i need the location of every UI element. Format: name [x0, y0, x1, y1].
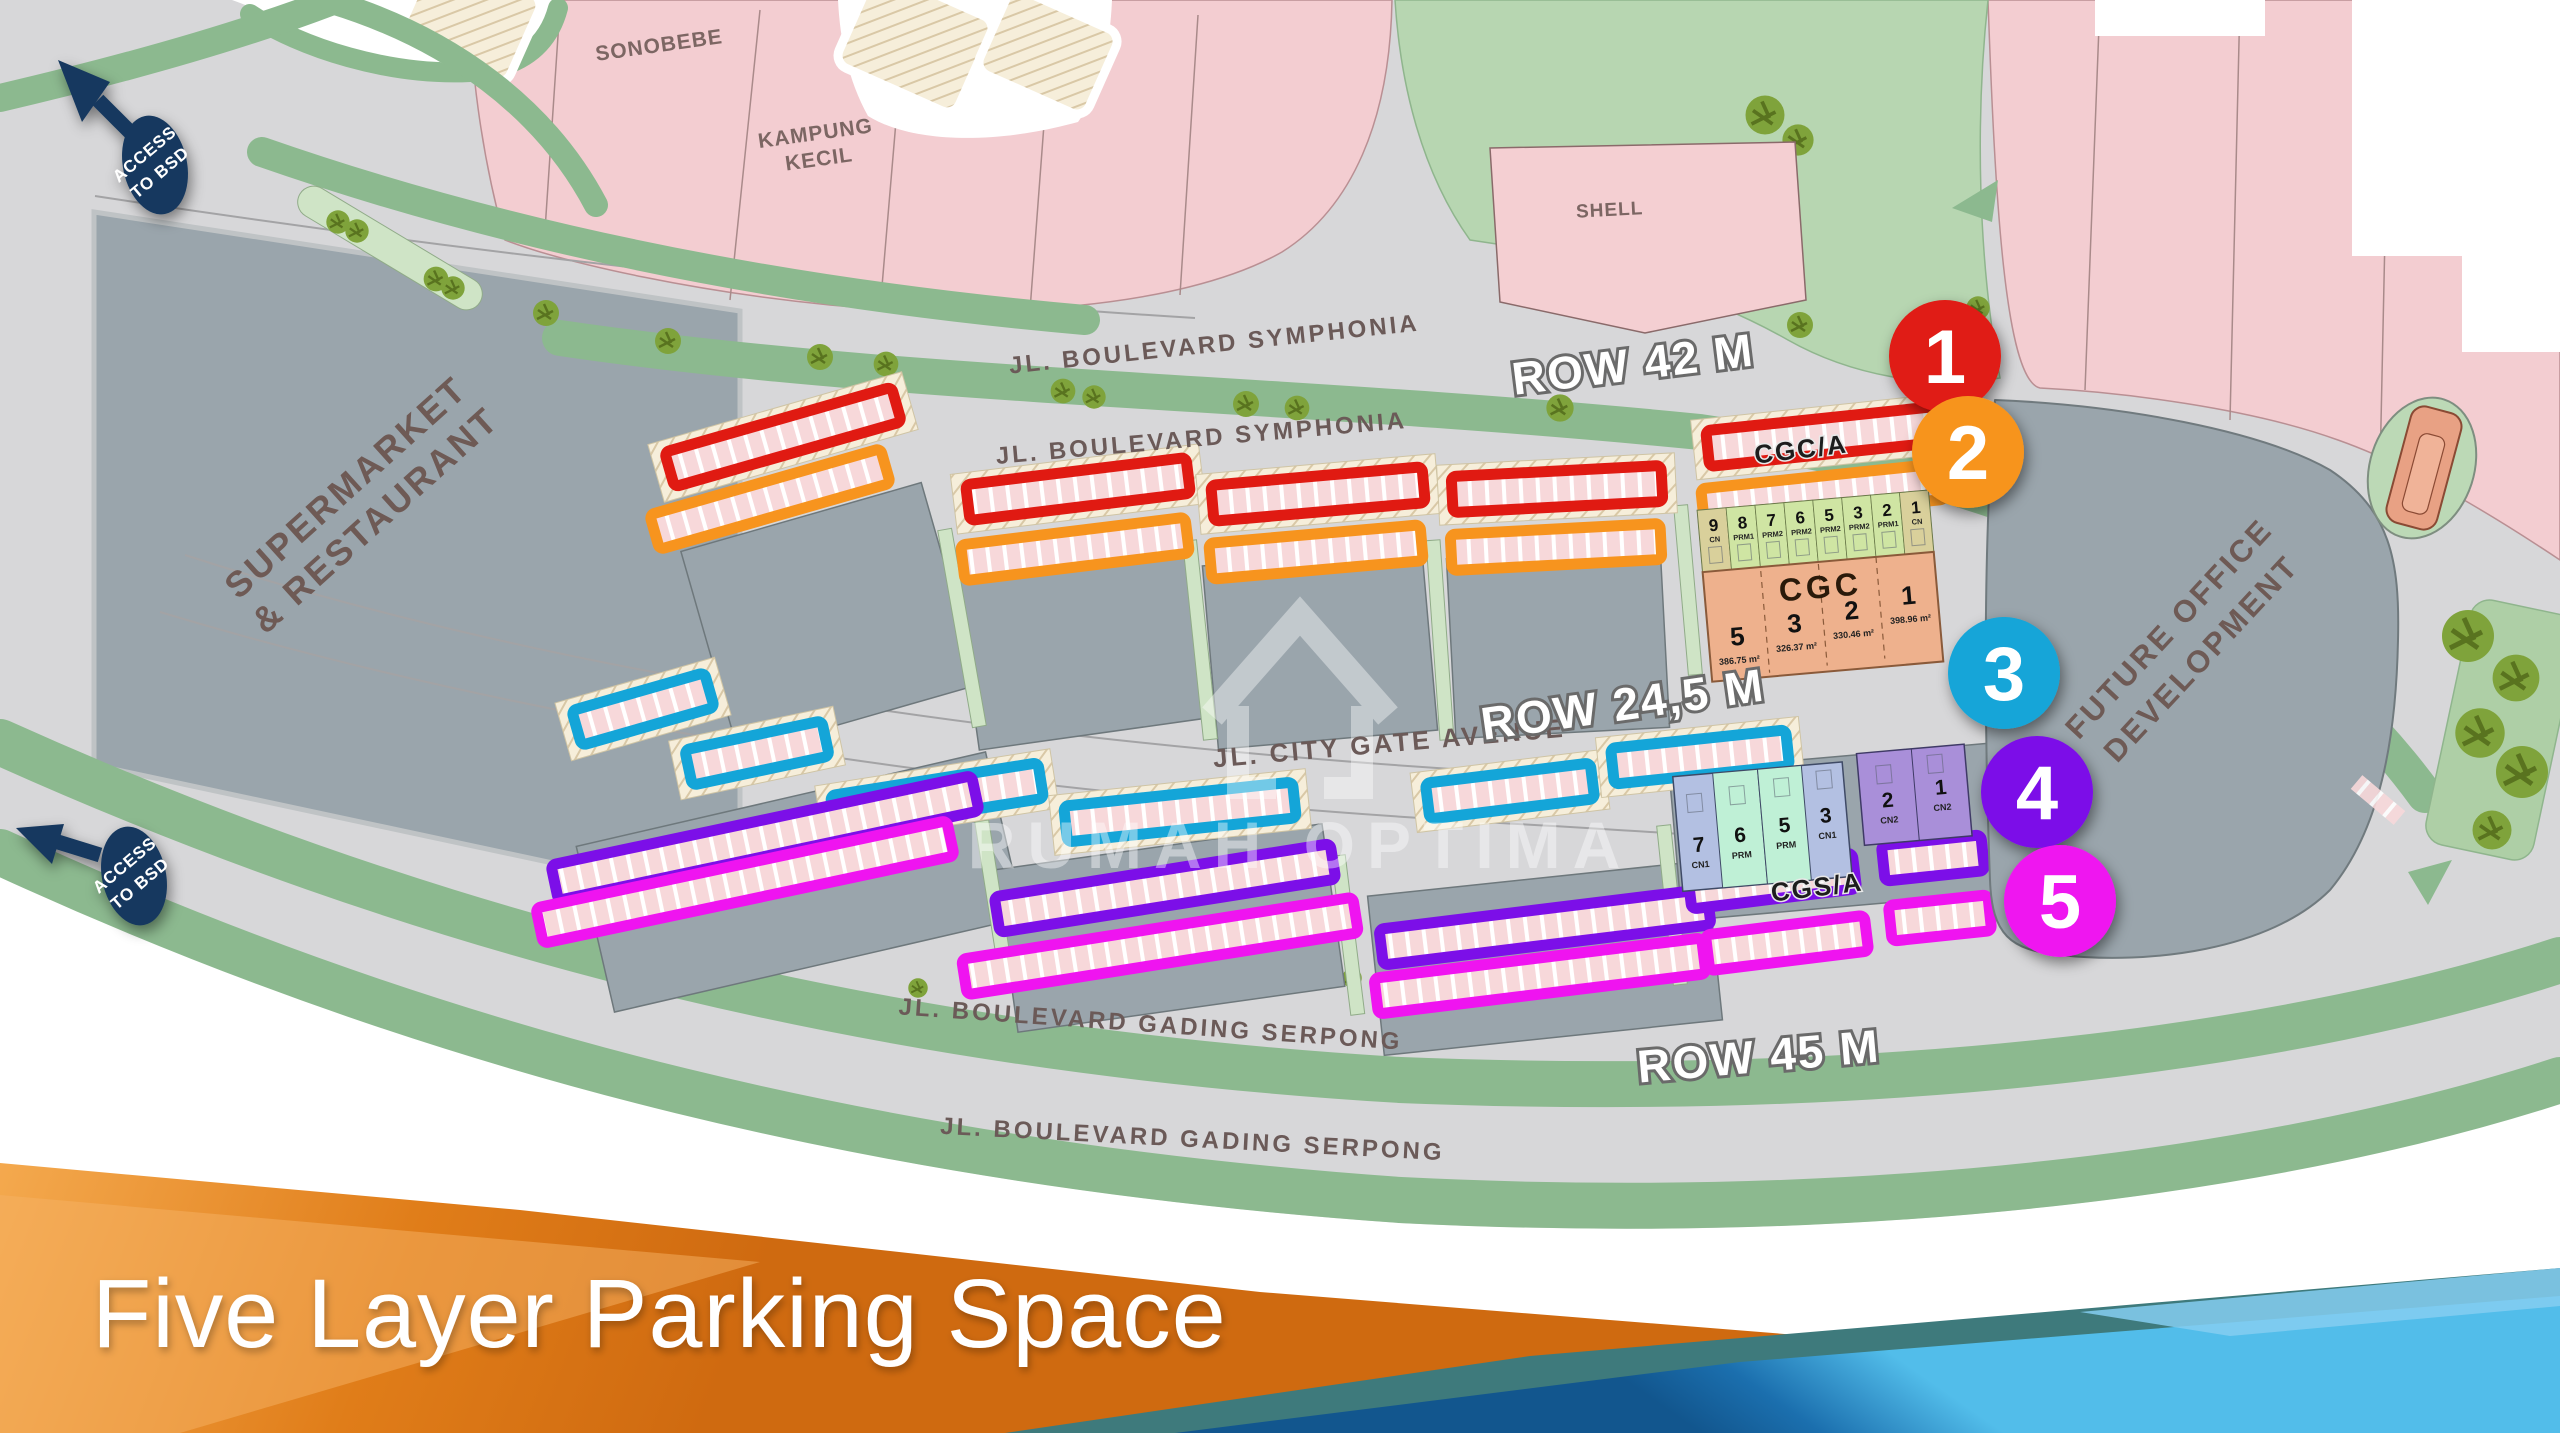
layer-marker-number: 4 — [2016, 751, 2058, 836]
cgs-unit-type: PRM — [1731, 849, 1752, 861]
layer-marker-2: 2 — [1912, 396, 2024, 508]
label-shell: SHELL — [1576, 198, 1644, 222]
cgs-unit-number: 5 — [1778, 814, 1792, 838]
cgc-unit-number: 3 — [1852, 503, 1863, 523]
shell-lot — [1490, 142, 1806, 333]
cgs-unit-type: CN1 — [1818, 830, 1837, 842]
cgc-lower-number: 3 — [1786, 608, 1803, 639]
layer-marker-number: 2 — [1947, 411, 1989, 496]
cgc-unit-number: 1 — [1910, 498, 1921, 518]
layer-marker-number: 1 — [1924, 315, 1966, 400]
cgc-unit-type: CN — [1911, 517, 1923, 527]
cgc-unit-number: 9 — [1708, 516, 1719, 536]
cgc-unit-type: PRM1 — [1733, 531, 1755, 542]
cgc-unit-type: PRM2 — [1820, 524, 1842, 535]
site-plan-map: 9 8 7 6 5 3 2 1 CN PRM1 PRM2 PRM2 PRM2 P… — [0, 0, 2560, 1229]
layer-marker-4: 4 — [1981, 736, 2093, 848]
cgs-unit-number: 1 — [1934, 776, 1948, 800]
cgc-unit-number: 5 — [1824, 505, 1835, 525]
slide-canvas: 9 8 7 6 5 3 2 1 CN PRM1 PRM2 PRM2 PRM2 P… — [0, 0, 2560, 1433]
layer-marker-number: 5 — [2039, 860, 2081, 945]
layer-marker-3: 3 — [1948, 617, 2060, 729]
cgc-unit-type: PRM1 — [1877, 519, 1899, 530]
cgs-unit-type: CN1 — [1691, 859, 1710, 871]
cgs-unit-type: PRM — [1776, 839, 1797, 851]
park-tree-icon — [1746, 96, 1785, 135]
layer-marker-1: 1 — [1889, 300, 2001, 412]
cgc-unit-type: PRM2 — [1848, 521, 1870, 532]
site-plan-svg: 9 8 7 6 5 3 2 1 CN PRM1 PRM2 PRM2 PRM2 P… — [0, 0, 2560, 1433]
cgs-unit-type: CN2 — [1933, 802, 1952, 814]
cgc-unit-number: 8 — [1737, 513, 1748, 533]
cgc-unit-type: CN — [1709, 534, 1721, 544]
layer-marker-5: 5 — [2004, 845, 2116, 957]
cgc-block: 9 8 7 6 5 3 2 1 CN PRM1 PRM2 PRM2 PRM2 P… — [1697, 490, 1943, 682]
cgc-unit-type: PRM2 — [1762, 529, 1784, 540]
cgs-unit-type: CN2 — [1880, 814, 1899, 826]
cgs-unit-number: 7 — [1692, 833, 1706, 857]
cgc-unit-number: 6 — [1795, 508, 1806, 528]
page-title: Five Layer Parking Space — [92, 1259, 1227, 1368]
cgs-unit-number: 3 — [1819, 804, 1833, 828]
cgc-lower-number: 2 — [1843, 595, 1860, 626]
cgc-unit-number: 2 — [1881, 500, 1892, 520]
cgs-unit-number: 2 — [1881, 789, 1895, 813]
cgc-lower-number: 5 — [1729, 621, 1746, 652]
watermark-text: RUMAH OPTIMA — [968, 808, 1633, 882]
layer-marker-number: 3 — [1983, 632, 2025, 717]
cgs-unit-number: 6 — [1733, 824, 1747, 848]
cgc-lower-number: 1 — [1900, 580, 1917, 611]
cgc-unit-number: 7 — [1766, 511, 1777, 531]
cgc-unit-type: PRM2 — [1791, 526, 1813, 537]
